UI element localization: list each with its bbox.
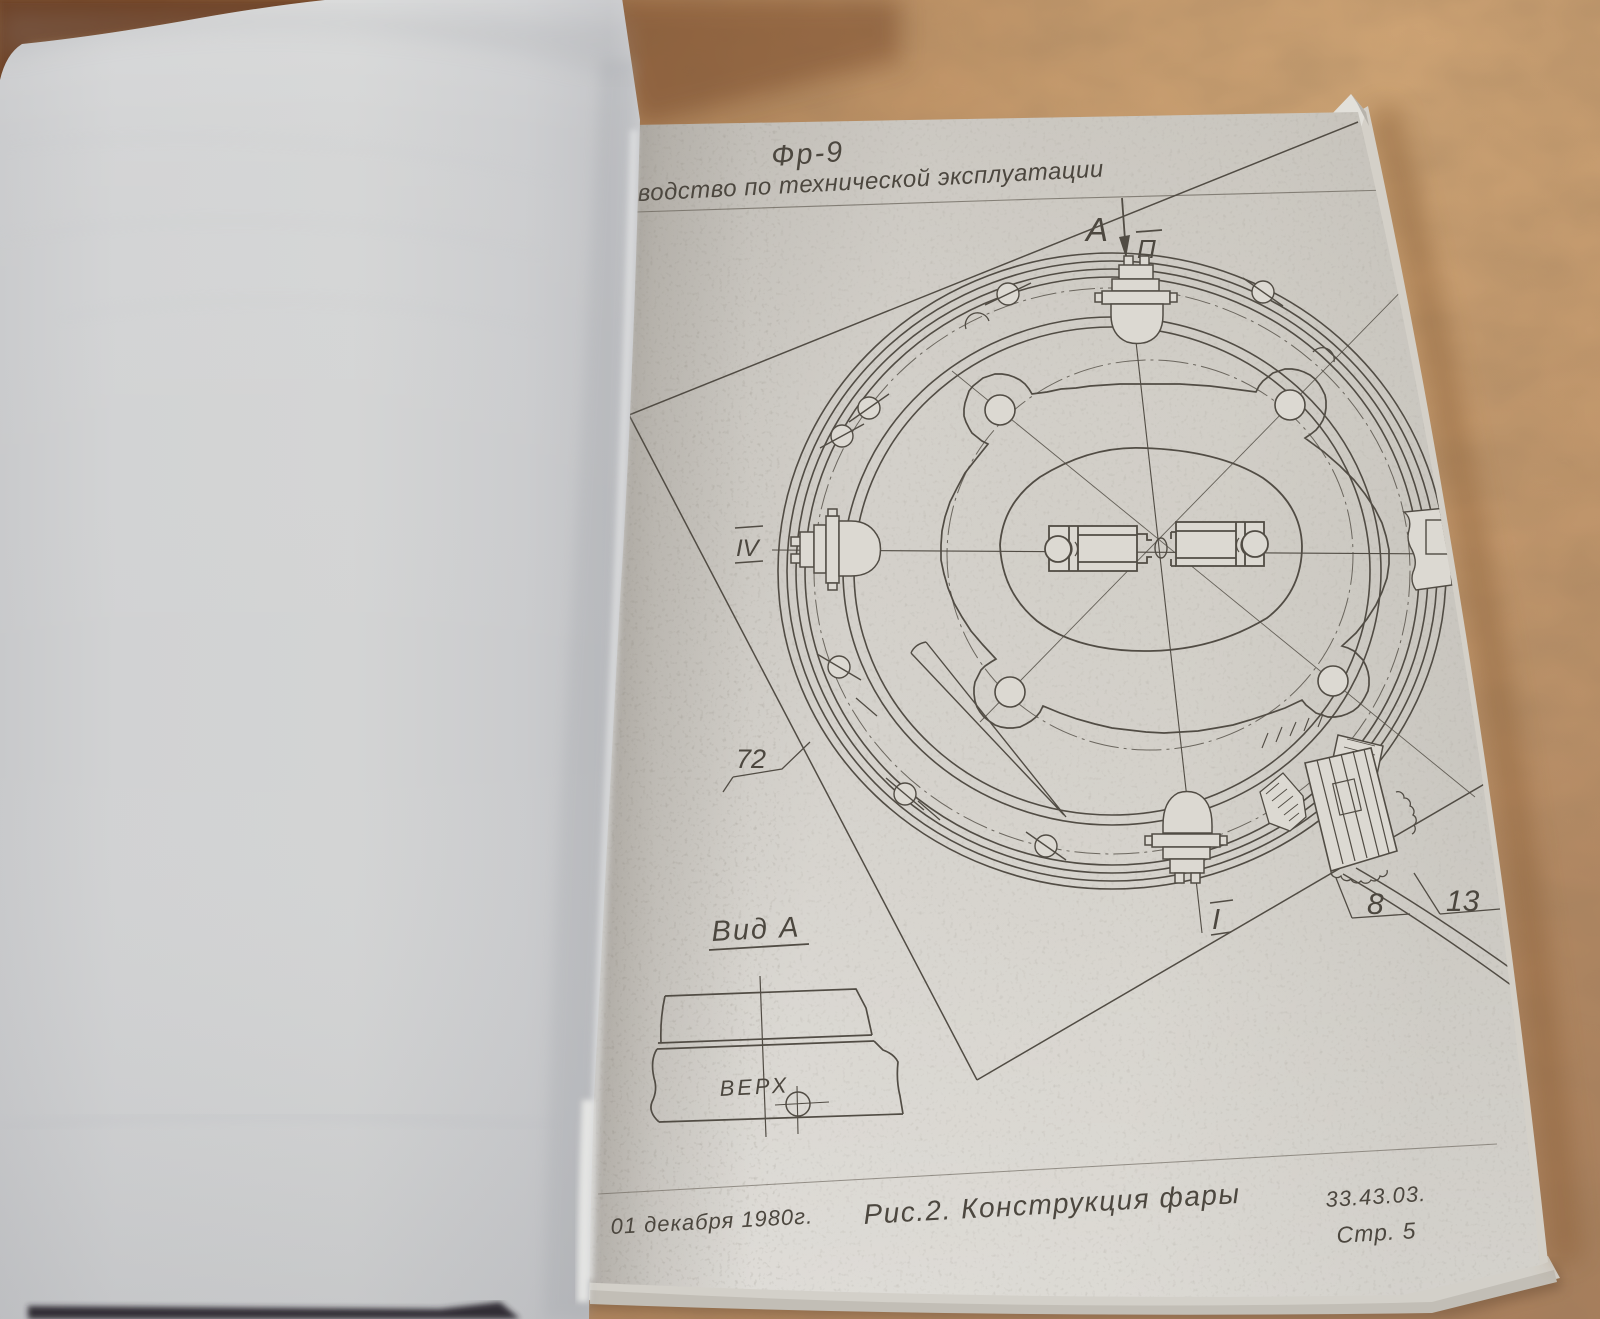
svg-text:Вид А: Вид А [711,911,801,948]
svg-text:72: 72 [736,744,766,774]
svg-text:Фр-9: Фр-9 [770,136,845,173]
svg-text:Стр. 5: Стр. 5 [1336,1217,1417,1248]
svg-text:IV: IV [736,535,761,562]
svg-text:ВЕРХ: ВЕРХ [719,1072,790,1101]
svg-text:I: I [1212,904,1220,936]
svg-text:А: А [1084,211,1108,248]
